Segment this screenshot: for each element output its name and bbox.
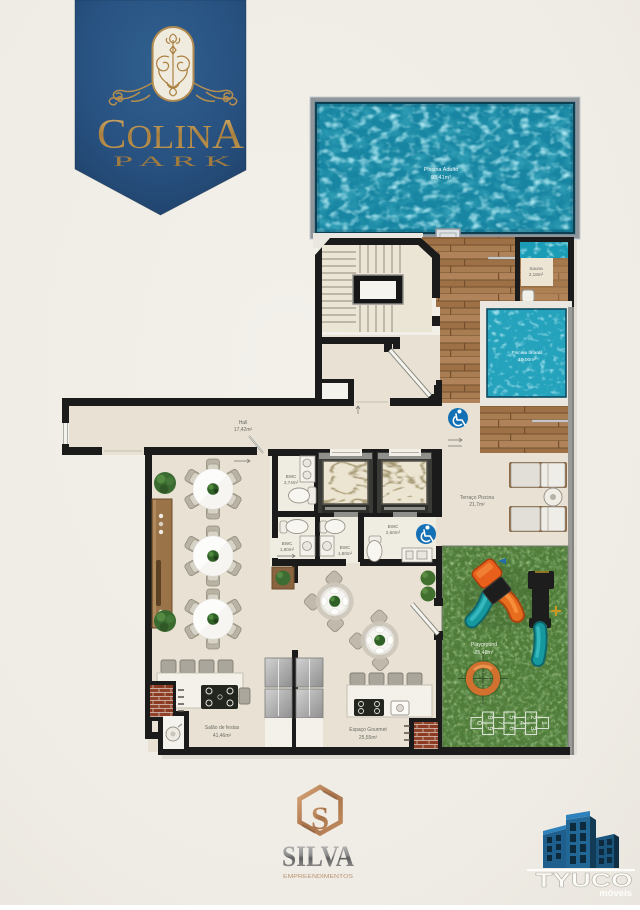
- svg-text:0: 0: [475, 721, 484, 725]
- svg-text:25,48m²: 25,48m²: [474, 650, 493, 656]
- svg-text:Espaço Gourmet: Espaço Gourmet: [349, 727, 387, 733]
- svg-text:10,00m²: 10,00m²: [518, 357, 536, 363]
- svg-text:BWC: BWC: [286, 474, 297, 479]
- svg-text:Piscina Adulto: Piscina Adulto: [424, 167, 459, 173]
- svg-text:móveis: móveis: [599, 888, 632, 899]
- svg-text:21,7m²: 21,7m²: [469, 502, 485, 508]
- svg-text:41,46m²: 41,46m²: [213, 733, 232, 739]
- svg-text:1: 1: [540, 721, 549, 725]
- svg-text:S: S: [311, 801, 329, 837]
- svg-text:2,74m²: 2,74m²: [284, 480, 299, 485]
- svg-text:Playground: Playground: [471, 642, 497, 648]
- svg-text:25,55m²: 25,55m²: [359, 735, 378, 741]
- svg-text:2: 2: [529, 715, 538, 719]
- svg-text:93,41m²: 93,41m²: [431, 175, 451, 181]
- svg-text:7: 7: [497, 721, 506, 725]
- svg-text:Hall: Hall: [239, 420, 248, 426]
- svg-text:Terraço Piscina: Terraço Piscina: [460, 495, 494, 501]
- svg-text:Salão de festas: Salão de festas: [205, 725, 240, 731]
- svg-text:P A R K: P A R K: [113, 154, 231, 170]
- svg-text:3: 3: [529, 726, 538, 730]
- svg-text:5: 5: [508, 715, 517, 719]
- svg-text:6: 6: [508, 726, 517, 730]
- svg-text:2,60m²: 2,60m²: [386, 530, 401, 535]
- svg-text:EMPREENDIMENTOS: EMPREENDIMENTOS: [283, 874, 353, 880]
- svg-text:1,80m²: 1,80m²: [338, 551, 353, 556]
- svg-text:8: 8: [486, 715, 495, 719]
- svg-text:BWC: BWC: [340, 545, 351, 550]
- svg-text:SILVA: SILVA: [282, 840, 354, 873]
- svg-text:4: 4: [518, 721, 527, 725]
- svg-text:Piscina Infantil: Piscina Infantil: [512, 350, 543, 356]
- svg-text:Sauna: Sauna: [529, 266, 543, 271]
- svg-text:2,18m²: 2,18m²: [529, 272, 544, 277]
- svg-text:COLINA: COLINA: [97, 112, 245, 158]
- svg-text:BWC: BWC: [282, 541, 293, 546]
- svg-text:BWC: BWC: [388, 524, 399, 529]
- svg-text:1,80m²: 1,80m²: [280, 547, 295, 552]
- svg-text:17,42m²: 17,42m²: [234, 427, 253, 433]
- svg-text:9: 9: [486, 726, 495, 730]
